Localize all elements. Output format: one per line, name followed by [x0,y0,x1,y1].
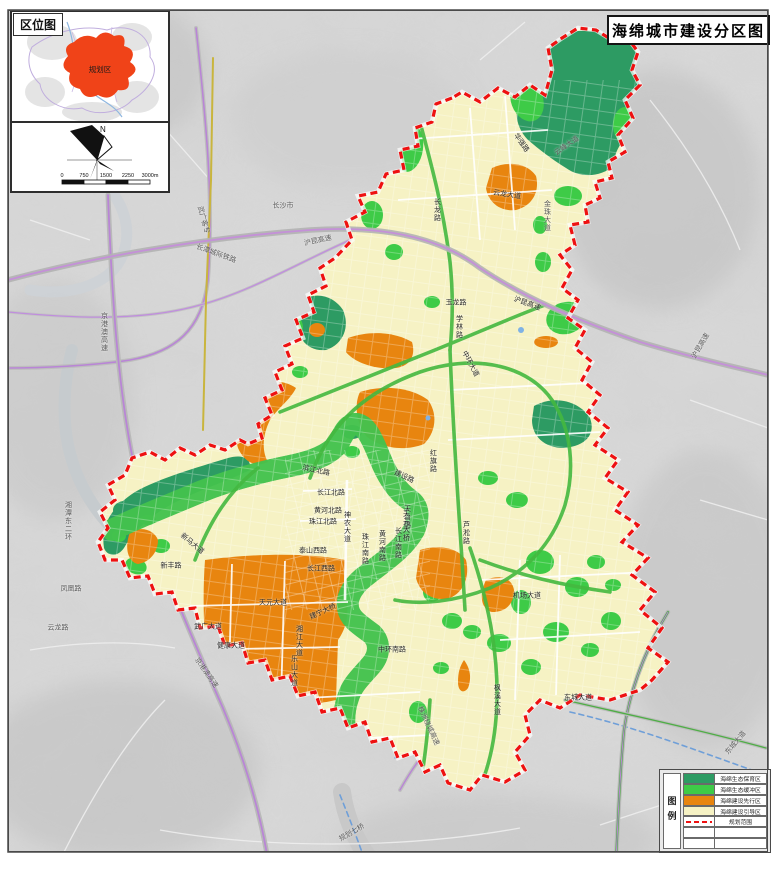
scale-bar: 0750150022503000m [60,173,158,184]
legend-swatch [683,838,715,849]
legend-label: 海绵生态保育区 [715,773,767,784]
inset-title: 区位图 [13,13,63,36]
compass-scale-panel: N 0750150022503000m [10,121,170,193]
legend-row: 海绵建设引导区 [683,806,767,817]
location-inset-panel: 区位图 规划区 [10,10,170,123]
map-title: 海绵城市建设分区图 [612,20,765,41]
legend-swatch [683,827,715,838]
scale-tick: 0 [60,173,63,179]
legend-row: 海绵生态缓冲区 [683,784,767,795]
legend-label [715,838,767,849]
legend-heading: 图例 [663,773,681,849]
legend-row [683,838,767,849]
map-title-box: 海绵城市建设分区图 [607,15,770,45]
legend-label: 规划范围 [715,816,767,827]
legend-swatch [683,795,715,806]
legend-swatch [683,806,715,817]
legend-rows: 海绵生态保育区海绵生态缓冲区海绵建设先行区海绵建设引导区规划范围 [683,773,767,849]
legend-row: 规划范围 [683,816,767,827]
compass-rose: N 0750150022503000m [12,123,168,191]
planning-region-label: 规划区 [89,64,112,74]
scale-tick: 2250 [122,173,134,179]
scale-tick: 1500 [100,173,112,179]
legend-label: 海绵建设引导区 [715,806,767,817]
legend-row: 海绵生态保育区 [683,773,767,784]
legend: 图例 海绵生态保育区海绵生态缓冲区海绵建设先行区海绵建设引导区规划范围 [659,769,771,853]
legend-label: 海绵生态缓冲区 [715,784,767,795]
legend-swatch [683,816,715,827]
legend-label [715,827,767,838]
scale-tick: 3000m [142,173,159,179]
scale-tick: 750 [79,173,88,179]
legend-label: 海绵建设先行区 [715,795,767,806]
sponge-city-map-sheet: 云龙大道华强路长龙路玉龙路学林路中环大道沪昆高速建设路天台路滨江北路长江北路黄河… [0,0,781,871]
legend-swatch [683,773,715,784]
legend-row: 海绵建设先行区 [683,795,767,806]
legend-swatch [683,784,715,795]
north-label: N [100,125,106,134]
legend-row [683,827,767,838]
